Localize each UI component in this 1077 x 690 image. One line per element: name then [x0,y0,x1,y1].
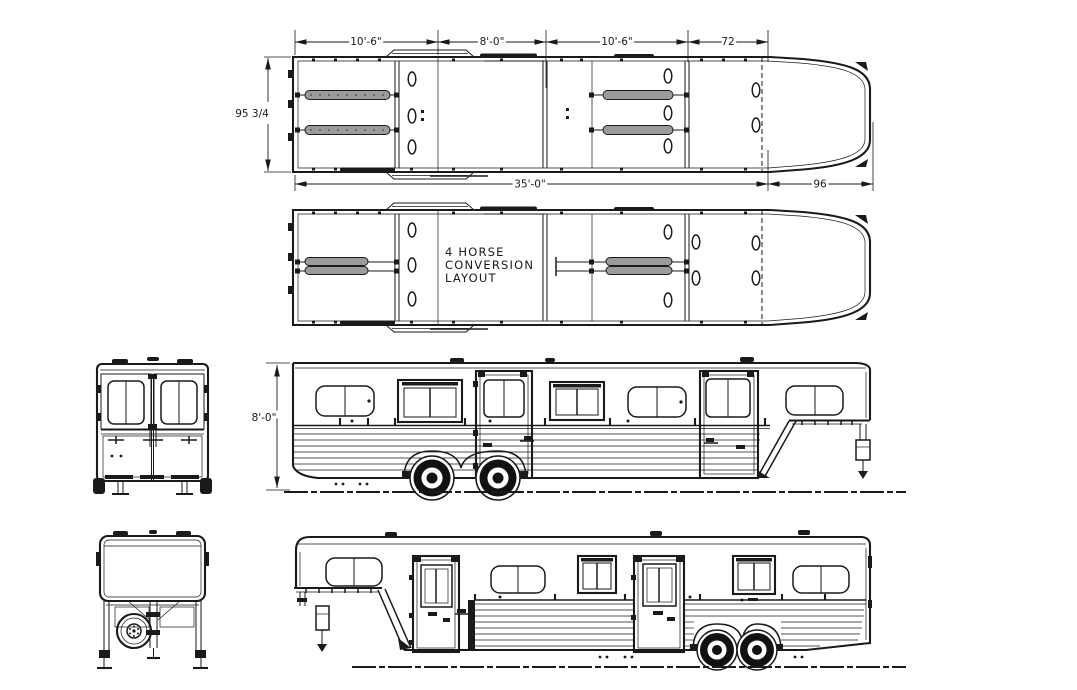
stall-dividers [295,91,689,135]
plan-dimensions: 10'-6" 8'-0" 10'-6" 72 95 3/4 35'-0" 96 [235,30,873,191]
window-framed-2 [550,382,604,420]
dim-body-length: 35'-0" [514,179,546,191]
plan-view-top [288,50,870,179]
dim-bay3: 10'-6" [601,36,633,48]
conversion-label-line1: 4 HORSE [445,245,505,259]
dim-bay4: 72 [721,36,734,48]
dim-side-height: 8'-0" [252,412,277,424]
roof-vent-icons [408,69,760,154]
tandem-wheels [690,624,783,670]
dim-bay1: 10'-6" [350,36,382,48]
front-elevation-view [96,530,209,668]
conversion-label: 4 HORSE CONVERSION LAYOUT [445,245,534,285]
side-door-1 [409,556,468,652]
conversion-label-line3: LAYOUT [445,271,497,285]
side-door-2 [631,556,684,652]
plan-view-conversion: 4 HORSE CONVERSION LAYOUT [288,203,870,332]
spare-tire [117,614,151,648]
blueprint-page: 10'-6" 8'-0" 10'-6" 72 95 3/4 35'-0" 96 [0,0,1077,690]
curbside-elevation-view: 8'-0" [252,357,906,500]
side-slats [468,600,866,650]
side-door-2 [700,371,758,478]
window-framed-1 [578,556,616,593]
wall-rivet-dots [312,59,747,171]
rear-lower-panel [103,430,202,479]
gooseneck-hitch [294,588,411,652]
rear-doors [97,374,208,480]
dim-plan-width: 95 3/4 [235,108,269,120]
front-under-frame [97,601,208,668]
trailer-blueprint-drawing: 10'-6" 8'-0" 10'-6" 72 95 3/4 35'-0" 96 [0,0,1077,690]
gooseneck-drop [757,420,870,479]
roadside-elevation-view [294,530,906,670]
window-framed-1 [398,380,462,422]
conversion-label-line2: CONVERSION [445,258,534,272]
dim-bay2: 8'-0" [480,36,505,48]
dim-gooseneck-length: 96 [813,179,827,191]
rear-elevation-view [93,357,212,494]
window-framed-2 [733,556,775,594]
